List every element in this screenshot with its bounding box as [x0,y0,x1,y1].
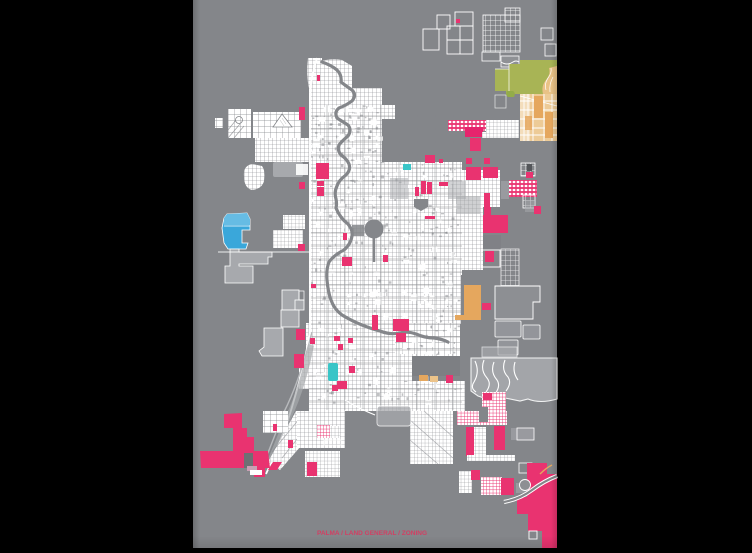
svg-text:PALMA / LAND GENERAL / ZONING: PALMA / LAND GENERAL / ZONING [317,530,427,537]
